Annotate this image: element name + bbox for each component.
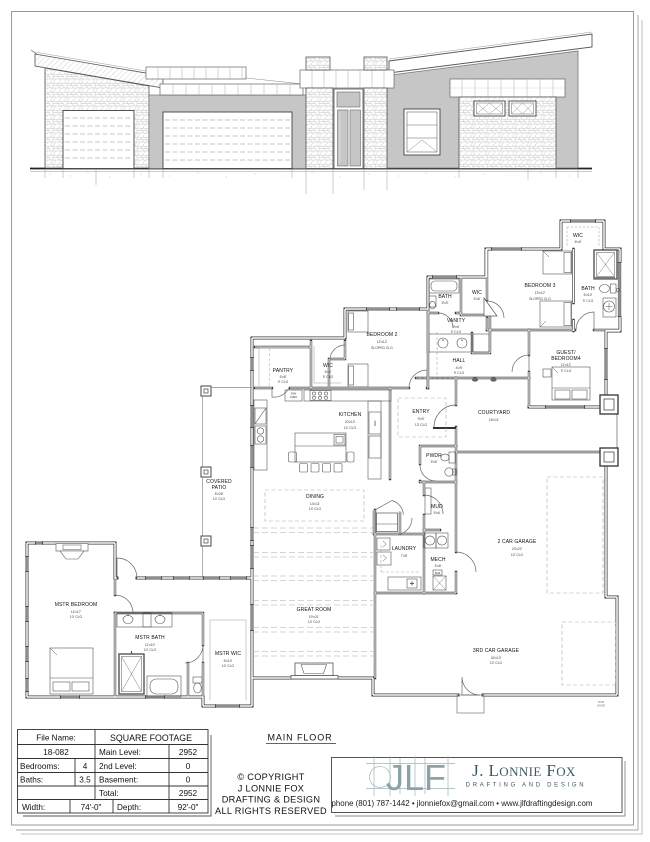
svg-text:BEDROOM 3: BEDROOM 3 xyxy=(525,283,556,289)
svg-text:18'x11': 18'x11' xyxy=(489,418,500,422)
svg-text:J LONNIE FOX: J LONNIE FOX xyxy=(238,783,304,793)
svg-text:SQUARE FOOTAGE: SQUARE FOOTAGE xyxy=(110,733,192,743)
svg-text:SLOPED CLG: SLOPED CLG xyxy=(371,346,393,350)
svg-text:5'x9': 5'x9' xyxy=(442,301,449,305)
svg-text:MSTR WIC: MSTR WIC xyxy=(215,651,241,657)
svg-text:PWDR: PWDR xyxy=(426,453,442,459)
svg-text:10' CLG: 10' CLG xyxy=(213,497,226,501)
svg-text:92'-0": 92'-0" xyxy=(178,803,199,812)
svg-text:10' CLG: 10' CLG xyxy=(511,553,524,557)
svg-text:PANTRY: PANTRY xyxy=(273,368,294,374)
svg-text:2952: 2952 xyxy=(179,748,198,757)
svg-text:Depth:: Depth: xyxy=(117,803,141,812)
svg-text:WIC: WIC xyxy=(323,363,333,369)
svg-text:13' CLG: 13' CLG xyxy=(415,423,428,427)
svg-text:8'x26': 8'x26' xyxy=(215,492,224,496)
svg-text:10' CLG: 10' CLG xyxy=(144,648,157,652)
svg-text:BEDROOM4: BEDROOM4 xyxy=(551,356,581,362)
svg-text:0: 0 xyxy=(186,762,191,771)
svg-text:9' CLG: 9' CLG xyxy=(323,375,334,379)
svg-text:File Name:: File Name: xyxy=(36,734,76,743)
svg-text:9' CLG: 9' CLG xyxy=(583,299,594,303)
svg-text:J. LONNIE FOX: J. LONNIE FOX xyxy=(472,761,576,780)
svg-text:Bedrooms:: Bedrooms: xyxy=(20,762,60,771)
svg-text:6'x4': 6'x4' xyxy=(325,370,332,374)
svg-text:JLF: JLF xyxy=(386,757,446,798)
svg-text:9' CLG: 9' CLG xyxy=(561,369,572,373)
svg-text:DRAFTING AND DESIGN: DRAFTING AND DESIGN xyxy=(466,783,587,789)
svg-text:2 CAR GARAGE: 2 CAR GARAGE xyxy=(498,539,537,545)
svg-text:34'x13': 34'x13' xyxy=(491,656,502,660)
svg-text:MSTR BATH: MSTR BATH xyxy=(135,635,165,641)
svg-text:3RD CAR GARAGE: 3RD CAR GARAGE xyxy=(473,648,520,654)
svg-text:BATH: BATH xyxy=(438,294,452,300)
svg-text:9'x9': 9'x9' xyxy=(418,417,425,421)
svg-text:9' CLG: 9' CLG xyxy=(278,380,289,384)
svg-text:13'x12': 13'x12' xyxy=(535,291,546,295)
svg-text:2952: 2952 xyxy=(179,789,198,798)
svg-text:MAIN FLOOR: MAIN FLOOR xyxy=(267,733,332,743)
svg-text:KITCHEN: KITCHEN xyxy=(339,412,362,418)
svg-text:5'x5': 5'x5' xyxy=(431,460,438,464)
svg-text:WIC: WIC xyxy=(472,290,482,296)
svg-text:14'x11': 14'x11' xyxy=(310,502,321,506)
svg-text:9' CLG: 9' CLG xyxy=(454,371,465,375)
svg-text:PATIO: PATIO xyxy=(212,485,227,491)
svg-text:ENTRY: ENTRY xyxy=(412,409,430,415)
svg-text:10' CLG: 10' CLG xyxy=(309,507,322,511)
svg-text:3.5: 3.5 xyxy=(79,776,91,785)
svg-text:B+B: B+B xyxy=(435,571,440,575)
svg-text:2nd Level:: 2nd Level: xyxy=(99,762,137,771)
svg-text:18-082: 18-082 xyxy=(43,748,69,757)
svg-text:0: 0 xyxy=(186,776,191,785)
svg-text:DINING: DINING xyxy=(306,494,324,500)
svg-text:10' CLG: 10' CLG xyxy=(70,615,83,619)
svg-text:6'x8': 6'x8' xyxy=(280,375,287,379)
svg-text:phone (801) 787-1442 • jlonnie: phone (801) 787-1442 • jlonniefox@gmail.… xyxy=(332,799,593,808)
svg-text:6'x10': 6'x10' xyxy=(584,293,593,297)
svg-text:OH DR: OH DR xyxy=(597,704,605,708)
svg-text:VANITY: VANITY xyxy=(447,318,466,324)
svg-text:Width:: Width: xyxy=(22,803,45,812)
svg-text:WIC: WIC xyxy=(573,233,583,239)
svg-text:10' CLG: 10' CLG xyxy=(222,664,235,668)
svg-text:5'x6': 5'x6' xyxy=(434,511,441,515)
svg-text:9' CLG: 9' CLG xyxy=(451,330,462,334)
svg-text:ALL RIGHTS RESERVED: ALL RIGHTS RESERVED xyxy=(215,806,327,816)
svg-text:HALL: HALL xyxy=(453,358,466,364)
svg-text:20'x13': 20'x13' xyxy=(345,420,356,424)
svg-text:5'x8': 5'x8' xyxy=(435,564,442,568)
svg-text:4: 4 xyxy=(83,762,88,771)
svg-text:10' CLG: 10' CLG xyxy=(490,661,503,665)
svg-text:MSTR BEDROOM: MSTR BEDROOM xyxy=(55,602,98,608)
svg-text:9'x6': 9'x6' xyxy=(453,325,460,329)
svg-text:LAUNDRY: LAUNDRY xyxy=(392,546,417,552)
svg-text:14'x17': 14'x17' xyxy=(71,610,82,614)
svg-text:16'x8': 16'x8' xyxy=(598,700,605,704)
svg-text:Total:: Total: xyxy=(99,789,119,798)
svg-text:Baths:: Baths: xyxy=(20,776,43,785)
svg-text:COURTYARD: COURTYARD xyxy=(478,410,510,416)
svg-text:7'x8': 7'x8' xyxy=(401,554,408,558)
svg-text:SLOPED CLG: SLOPED CLG xyxy=(529,297,551,301)
svg-text:GREAT ROOM: GREAT ROOM xyxy=(297,607,332,613)
svg-text:19'x21': 19'x21' xyxy=(309,615,320,619)
svg-text:© COPYRIGHT: © COPYRIGHT xyxy=(237,772,304,782)
svg-text:4'x9': 4'x9' xyxy=(456,366,463,370)
svg-text:23'x22': 23'x22' xyxy=(512,547,523,551)
svg-text:6'x5': 6'x5' xyxy=(575,240,582,244)
svg-text:MECH: MECH xyxy=(430,557,445,563)
svg-text:6'x10': 6'x10' xyxy=(224,659,233,663)
svg-text:13' CLG: 13' CLG xyxy=(308,620,321,624)
svg-text:BEDROOM 2: BEDROOM 2 xyxy=(367,332,398,338)
svg-text:10' CLG: 10' CLG xyxy=(344,426,357,430)
svg-text:BATH: BATH xyxy=(581,286,595,292)
svg-text:11'x10': 11'x10' xyxy=(145,643,156,647)
svg-text:Basement:: Basement: xyxy=(99,776,138,785)
svg-text:OVEN: OVEN xyxy=(290,395,297,399)
svg-text:REF: REF xyxy=(373,420,377,426)
svg-text:DRAFTING & DESIGN: DRAFTING & DESIGN xyxy=(222,795,321,805)
svg-text:12'x12': 12'x12' xyxy=(377,340,388,344)
svg-text:11'x12': 11'x12' xyxy=(561,363,572,367)
svg-text:74'-0": 74'-0" xyxy=(81,803,102,812)
svg-text:Main Level:: Main Level: xyxy=(99,748,141,757)
svg-text:MUD: MUD xyxy=(431,504,443,510)
svg-text:5'x6': 5'x6' xyxy=(474,297,481,301)
